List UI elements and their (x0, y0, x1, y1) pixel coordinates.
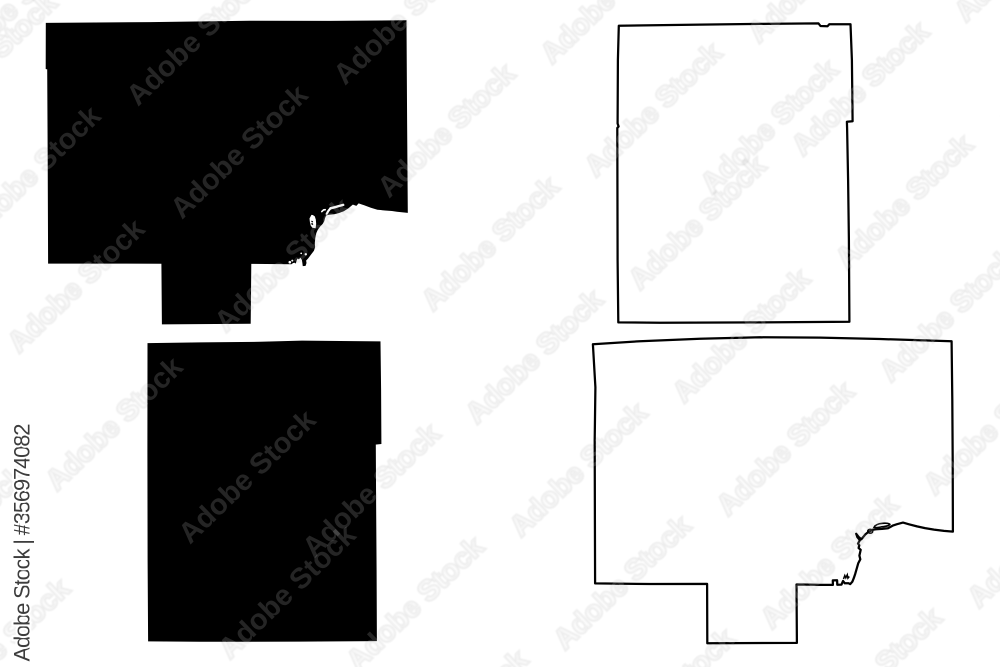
svg-text:Adobe Stock | #356974082: Adobe Stock | #356974082 (10, 424, 35, 662)
